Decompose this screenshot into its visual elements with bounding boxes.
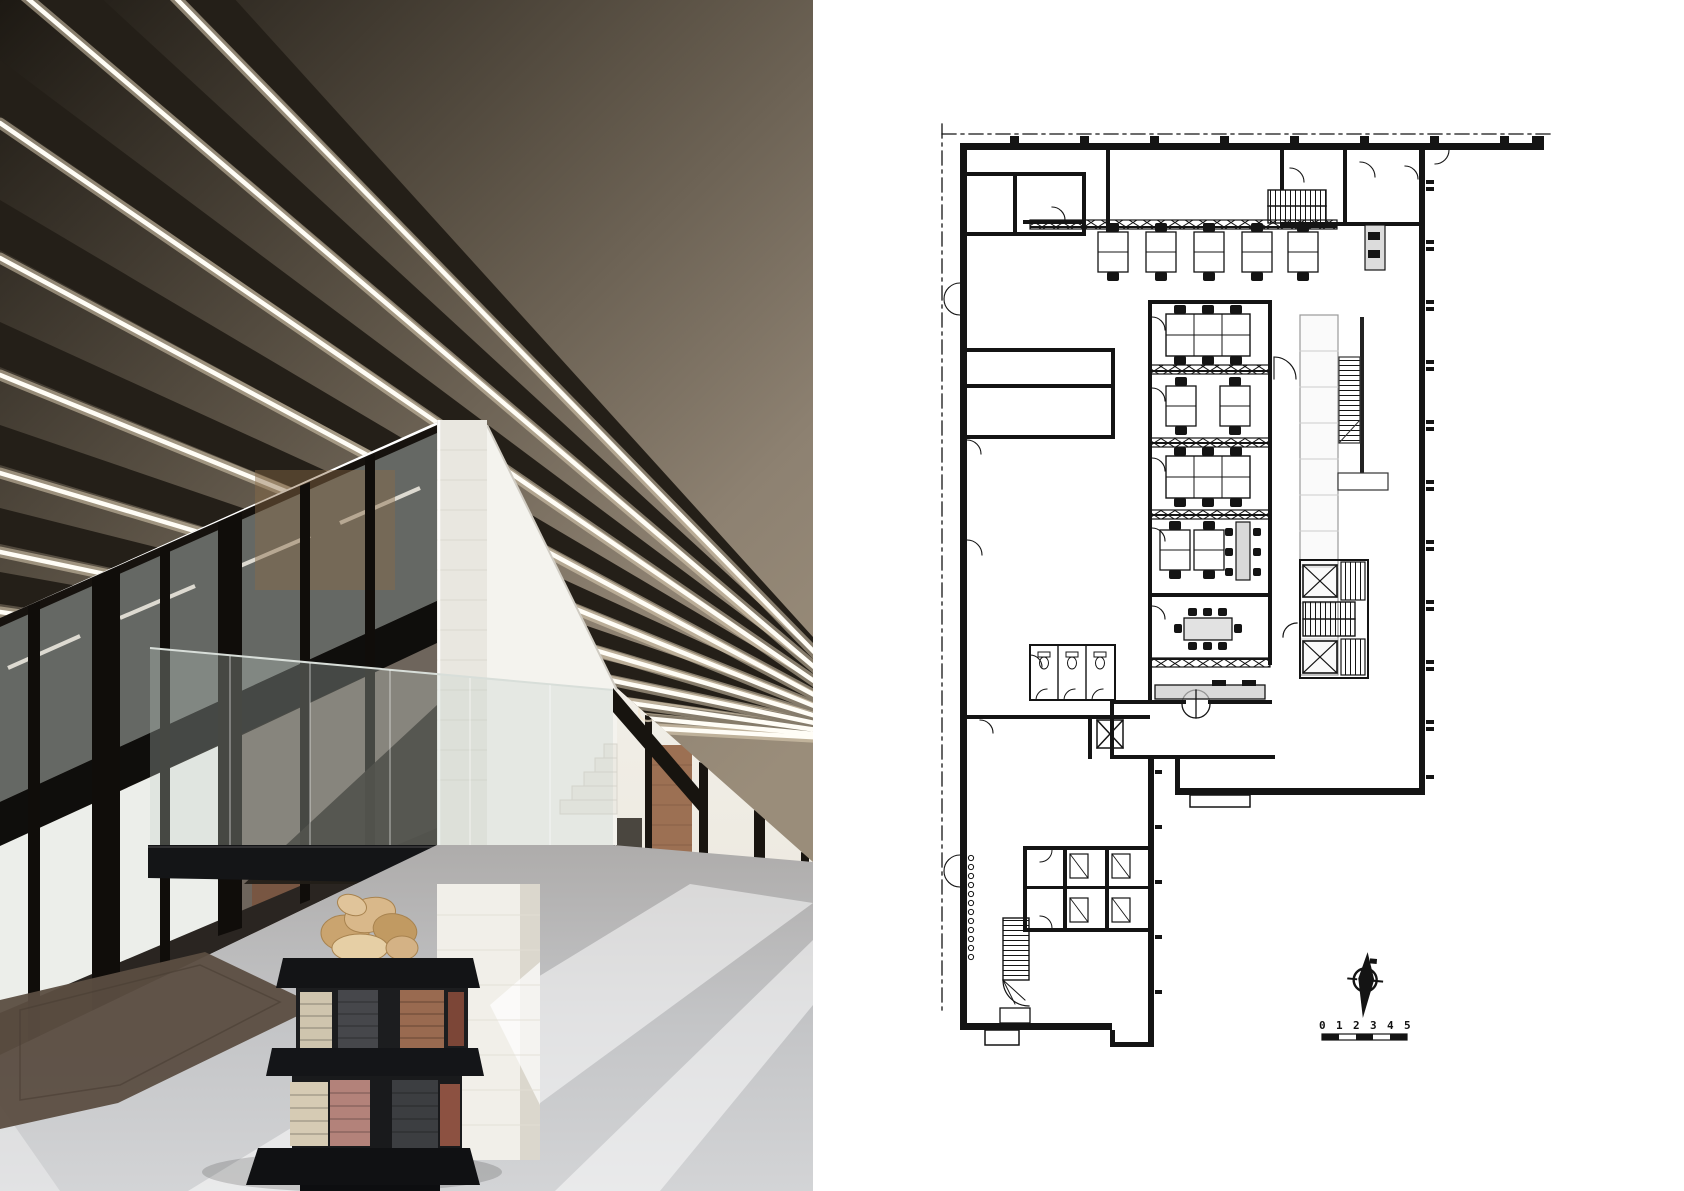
door-arc xyxy=(1283,623,1297,637)
stair-to-mezzanine xyxy=(1339,357,1360,443)
scale-label: 0 xyxy=(1319,1019,1326,1032)
wc-block-north xyxy=(1030,645,1115,700)
interior-photograph xyxy=(0,0,813,1191)
copier-station xyxy=(1365,225,1385,270)
mid-slab xyxy=(266,1048,484,1076)
kitchen-counter xyxy=(1155,680,1265,699)
plan-canvas: 0 1 2 3 4 5 xyxy=(860,110,1560,1100)
entrance-step xyxy=(985,1030,1019,1045)
coat-hooks xyxy=(968,855,973,959)
base-slab xyxy=(246,1148,480,1185)
meeting-table xyxy=(1184,618,1232,640)
photo-canvas xyxy=(0,0,813,1191)
fixture xyxy=(1000,1008,1030,1023)
open-plan-desk-row xyxy=(1098,223,1318,281)
north-stair xyxy=(1268,190,1326,223)
south-step xyxy=(1190,795,1250,807)
scale-label: 2 xyxy=(1353,1019,1360,1032)
north-arrow-icon xyxy=(1345,951,1385,1020)
scale-label: 3 xyxy=(1370,1019,1377,1032)
scale-label: 4 xyxy=(1387,1019,1394,1032)
scale-label: 1 xyxy=(1336,1019,1343,1032)
interior-walls xyxy=(960,143,1425,932)
high-table xyxy=(1236,522,1250,580)
scale-label: 5 xyxy=(1404,1019,1411,1032)
scale-bar: 0 1 2 3 4 5 xyxy=(1319,1019,1411,1040)
southwest-stair xyxy=(1000,918,1030,1023)
top-slab xyxy=(276,958,480,988)
meeting-room xyxy=(1174,608,1242,650)
floor-plan: 0 1 2 3 4 5 xyxy=(860,110,1560,1100)
